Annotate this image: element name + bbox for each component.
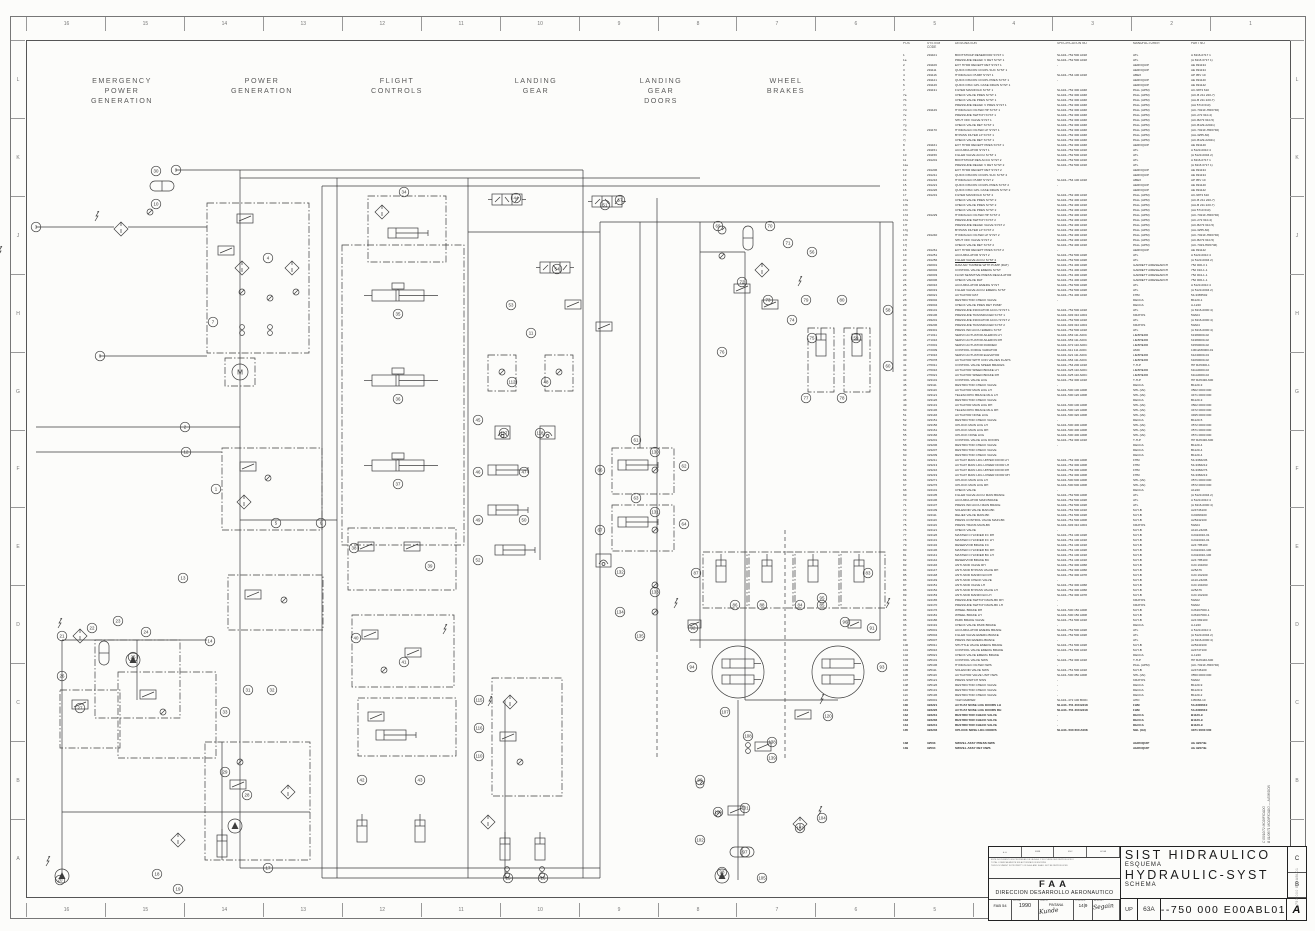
parts-table-header: POS SYSTEM CODE DESIGNATION SPECIFICATIO… (903, 42, 1255, 49)
svg-text:20: 20 (58, 878, 63, 883)
table-cell: SLA34--500 600 A008 (1057, 728, 1133, 733)
date-cell: FECHA 1990 (1012, 900, 1039, 920)
svg-text:73: 73 (766, 298, 771, 303)
svg-text:60: 60 (886, 364, 891, 369)
svg-text:51: 51 (603, 203, 608, 208)
svg-text:46: 46 (476, 470, 481, 475)
svg-text:43: 43 (418, 778, 423, 783)
svg-text:32: 32 (270, 688, 275, 693)
svg-text:75: 75 (810, 336, 815, 341)
svg-text:83: 83 (866, 571, 871, 576)
title-block-signature-row: FAB 54 FECHA 1990 DIBUJO PINTANA Kunde C… (989, 900, 1120, 920)
manifold-boxes (60, 196, 885, 860)
svg-text:76: 76 (720, 350, 725, 355)
table-cell: 135 (903, 728, 927, 733)
table-cell: 3371 0000 000 (1191, 728, 1251, 733)
svg-text:105: 105 (758, 876, 766, 881)
svg-text:102: 102 (696, 838, 704, 843)
svg-text:38: 38 (352, 546, 357, 551)
svg-text:57: 57 (618, 198, 623, 203)
component-symbols (0, 181, 890, 883)
table-row: 13932504SWIVEL ASSY RET NWSAEROQUIPAE 92… (903, 746, 1255, 751)
svg-text:52: 52 (476, 558, 481, 563)
svg-text:58: 58 (886, 308, 891, 313)
drawing-number-row: UP 63A --750 000 E00ABL01 A (1121, 899, 1306, 920)
svg-text:47: 47 (522, 470, 527, 475)
svg-text:98: 98 (720, 870, 725, 875)
svg-text:95: 95 (820, 596, 825, 601)
svg-text:48: 48 (544, 380, 549, 385)
svg-text:78: 78 (840, 396, 845, 401)
svg-text:103: 103 (796, 826, 804, 831)
organization: FAA DIRECCION DESARROLLO AERONAUTICO (989, 879, 1120, 900)
svg-text:132: 132 (616, 570, 624, 575)
svg-text:77: 77 (804, 396, 809, 401)
svg-text:35: 35 (396, 312, 401, 317)
table-cell (1057, 746, 1133, 751)
svg-text:41: 41 (402, 660, 407, 665)
svg-text:104: 104 (818, 816, 826, 821)
title-english: HYDRAULIC-SYST (1125, 869, 1283, 882)
svg-text:87: 87 (694, 571, 699, 576)
svg-text:21: 21 (60, 634, 65, 639)
distribution-lines (36, 170, 893, 880)
svg-text:97: 97 (743, 850, 748, 855)
svg-text:40: 40 (354, 636, 359, 641)
svg-text:18: 18 (155, 872, 160, 877)
table-cell: UPLOCK NOSE LDG DOORS (955, 728, 1057, 733)
svg-text:92: 92 (691, 626, 696, 631)
org-subtitle: DIRECCION DESARROLLO AERONAUTICO (989, 890, 1120, 896)
svg-text:133: 133 (651, 590, 659, 595)
svg-text:22: 22 (90, 626, 95, 631)
svg-text:24: 24 (144, 630, 149, 635)
svg-text:16: 16 (541, 876, 546, 881)
col-pos: POS (903, 42, 927, 49)
col-specification: SPECIFICATION NO (1057, 42, 1133, 49)
table-cell: SWIVEL ASSY RET NWS (955, 746, 1057, 751)
svg-text:85: 85 (820, 603, 825, 608)
svg-text:13: 13 (181, 576, 186, 581)
code-prefix: UP (1121, 899, 1138, 920)
svg-text:72: 72 (740, 280, 745, 285)
svg-text:69: 69 (716, 224, 721, 229)
svg-text:44: 44 (514, 196, 519, 201)
svg-text:64: 64 (682, 522, 687, 527)
svg-text:74: 74 (790, 318, 795, 323)
table-cell: 139 (903, 746, 927, 751)
svg-text:59: 59 (854, 336, 859, 341)
revision-note-line: B 01/06/71 MODIFICADO — A EMISION (1267, 743, 1272, 843)
fab-cell: FAB 54 (989, 900, 1012, 920)
sheet-code: 63A (1138, 899, 1161, 920)
svg-text:110: 110 (476, 754, 484, 759)
svg-text:15: 15 (506, 876, 511, 881)
svg-text:23: 23 (116, 619, 121, 624)
svg-text:31: 31 (246, 688, 251, 693)
svg-text:7: 7 (212, 320, 215, 325)
callout-balloons: 3091038212156471314212223242526272829313… (31, 165, 893, 894)
drawing-number: --750 000 E00ABL01 (1161, 899, 1286, 920)
svg-text:108: 108 (744, 734, 752, 739)
col-manufacturer: MANUFACTURER (1133, 42, 1191, 49)
title-block: ⊕ ⊖SIMBESCHOJA ESTE DOCUMENTO ES PROPIED… (988, 846, 1307, 921)
strip-cell: SIMB (1022, 847, 1055, 857)
svg-text:117: 117 (501, 431, 509, 436)
svg-text:37: 37 (396, 482, 401, 487)
svg-text:135: 135 (636, 634, 644, 639)
svg-text:130: 130 (651, 450, 659, 455)
property-notice: ESTE DOCUMENTO ES PROPIEDAD DE LA F.A.A.… (989, 858, 1120, 879)
svg-text:66: 66 (598, 468, 603, 473)
svg-text:1: 1 (215, 487, 218, 492)
svg-text:30: 30 (154, 169, 159, 174)
svg-text:79: 79 (804, 298, 809, 303)
col-designation: DESIGNATION (955, 42, 1057, 49)
svg-text:67: 67 (598, 528, 603, 533)
svg-text:99: 99 (698, 778, 703, 783)
approved-cell: APROBO Segain (1093, 900, 1120, 920)
table-row: 135323246UPLOCK NOSE LDG DOORSSLA34--500… (903, 728, 1255, 733)
svg-text:26: 26 (60, 674, 65, 679)
col-part-no: PART NO (1191, 42, 1251, 49)
svg-text:94: 94 (690, 665, 695, 670)
strip-cell: ESC (1054, 847, 1087, 857)
svg-text:86: 86 (733, 603, 738, 608)
drawn-cell: DIBUJO PINTANA Kunde (1039, 900, 1074, 920)
drawing-titles: SIST HIDRAULICO ESQUEMA HYDRAULIC-SYST S… (1121, 847, 1287, 898)
org-name: FAA (989, 879, 1120, 890)
svg-text:56: 56 (810, 250, 815, 255)
title-block-right: SIST HIDRAULICO ESQUEMA HYDRAULIC-SYST S… (1121, 847, 1306, 920)
svg-text:50: 50 (522, 518, 527, 523)
table-cell: 32504 (927, 746, 955, 751)
svg-text:11: 11 (529, 331, 534, 336)
svg-text:100: 100 (714, 810, 722, 815)
svg-text:28: 28 (245, 793, 250, 798)
date-small-cell: CONTROL 14|9 (1074, 900, 1093, 920)
margin-drawing-number: 750 000 E00ABL01 (1295, 868, 1299, 905)
svg-text:93: 93 (880, 665, 885, 670)
svg-text:88: 88 (760, 603, 765, 608)
col-system-code: SYSTEM CODE (927, 42, 955, 49)
svg-text:12: 12 (184, 450, 189, 455)
svg-text:96: 96 (843, 620, 848, 625)
svg-text:139: 139 (768, 756, 776, 761)
svg-text:118: 118 (537, 431, 545, 436)
parts-table-body: 1291101BOOTSTRAP RESERVOIR SYST 1SLA34--… (903, 53, 1255, 751)
revision-notes-rotated: C 05/10/72 MODIFICADOB 01/06/71 MODIFICA… (1262, 743, 1271, 843)
svg-text:54: 54 (555, 267, 560, 272)
svg-text:29: 29 (223, 770, 228, 775)
svg-text:25: 25 (131, 655, 136, 660)
svg-text:116: 116 (476, 726, 484, 731)
table-cell: AEROQUIP (1133, 746, 1191, 751)
svg-text:131: 131 (651, 510, 659, 515)
svg-text:33: 33 (223, 710, 228, 715)
parts-list-table: POS SYSTEM CODE DESIGNATION SPECIFICATIO… (903, 42, 1255, 751)
svg-text:4: 4 (267, 256, 270, 261)
svg-text:134: 134 (616, 610, 624, 615)
svg-text:84: 84 (798, 603, 803, 608)
subtitle-english: SCHEMA (1125, 882, 1283, 889)
svg-text:27: 27 (78, 706, 83, 711)
title-spanish: SIST HIDRAULICO (1125, 849, 1283, 862)
svg-text:42: 42 (360, 778, 365, 783)
strip-cell: ⊕ ⊖ (989, 847, 1022, 857)
table-cell: AE 92074E (1191, 746, 1251, 751)
svg-text:5: 5 (275, 521, 278, 526)
svg-text:115: 115 (476, 698, 484, 703)
strip-cell: HOJA (1087, 847, 1120, 857)
drawing-sheet: 1616151514141313121211111010998877665544… (0, 0, 1315, 931)
svg-text:45: 45 (476, 418, 481, 423)
svg-text:62: 62 (682, 464, 687, 469)
title-block-strip: ⊕ ⊖SIMBESCHOJA (989, 847, 1120, 858)
svg-text:80: 80 (840, 298, 845, 303)
svg-text:101: 101 (741, 806, 749, 811)
svg-text:112: 112 (509, 380, 517, 385)
signature-approved: Segain (1093, 902, 1119, 912)
table-cell: 323246 (927, 728, 955, 733)
svg-text:17: 17 (266, 866, 271, 871)
table-row-gap (903, 733, 1255, 741)
svg-text:107: 107 (721, 710, 729, 715)
svg-text:71: 71 (786, 241, 791, 246)
svg-text:91: 91 (870, 626, 875, 631)
svg-text:36: 36 (396, 397, 401, 402)
svg-text:10: 10 (154, 202, 159, 207)
table-cell: SHL (IAI) (1133, 728, 1191, 733)
svg-text:14: 14 (208, 639, 213, 644)
svg-text:39: 39 (428, 564, 433, 569)
svg-text:63: 63 (634, 496, 639, 501)
svg-text:138: 138 (768, 740, 776, 745)
title-block-left: ⊕ ⊖SIMBESCHOJA ESTE DOCUMENTO ES PROPIED… (989, 847, 1121, 920)
svg-text:53: 53 (509, 303, 514, 308)
svg-text:34: 34 (402, 190, 407, 195)
svg-text:61: 61 (634, 438, 639, 443)
svg-text:120: 120 (824, 714, 832, 719)
svg-text:19: 19 (176, 887, 181, 892)
svg-text:49: 49 (476, 518, 481, 523)
svg-text:70: 70 (768, 224, 773, 229)
